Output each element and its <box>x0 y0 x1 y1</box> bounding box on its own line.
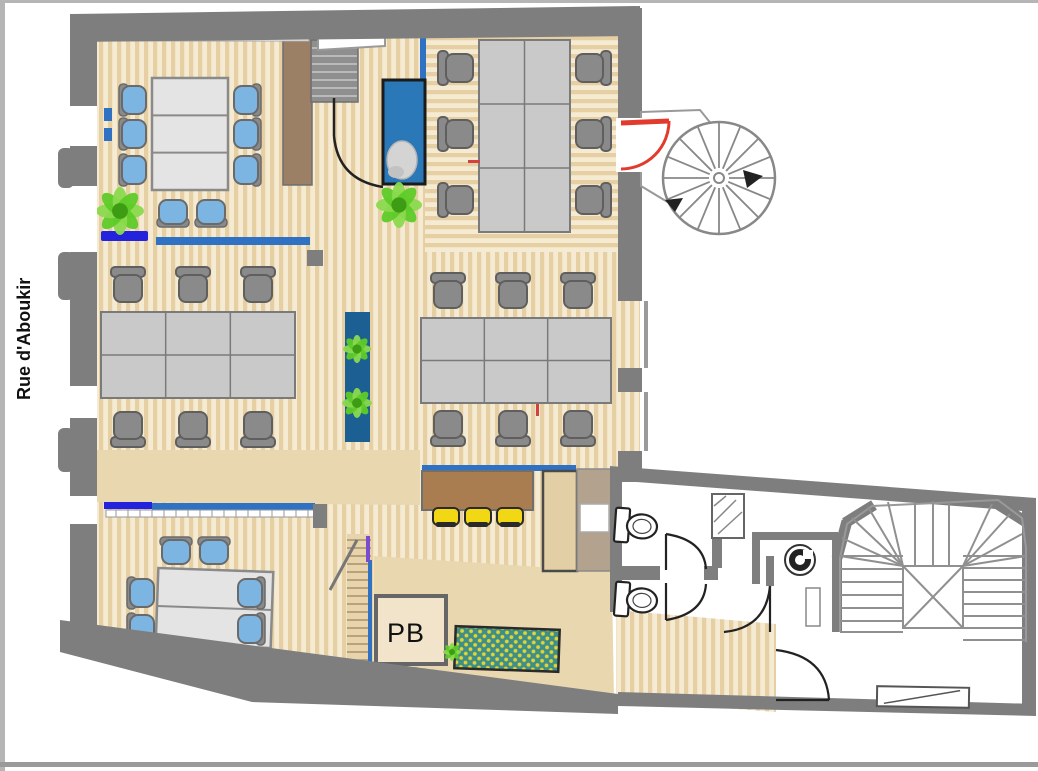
plant <box>443 643 461 661</box>
alcove-wall-h <box>752 532 838 540</box>
floor-plan-page: PB <box>0 0 1038 771</box>
aquarium <box>383 80 425 184</box>
desk-cluster <box>479 40 570 232</box>
left-wall <box>70 14 97 625</box>
hall-door-wall <box>766 556 774 586</box>
office-chair <box>438 183 473 217</box>
washbasin <box>785 545 815 575</box>
duct-shaft <box>712 494 744 538</box>
blue-chair <box>160 537 192 564</box>
office-chair <box>241 267 275 302</box>
meeting-room-glazing <box>156 237 310 245</box>
office-chair <box>111 267 145 302</box>
office-chair <box>438 51 473 85</box>
office-chair <box>176 412 210 447</box>
window-sill-mark <box>104 128 112 141</box>
plant <box>96 187 144 235</box>
right-wall-upper <box>618 8 642 120</box>
blue-chair <box>234 154 261 186</box>
blue-chair <box>119 154 146 186</box>
right-wall-mid <box>618 168 642 301</box>
office-chair <box>431 273 465 308</box>
red-tick <box>536 404 539 416</box>
wall-stub <box>307 250 323 266</box>
glass-partition <box>420 32 426 81</box>
right-wall-tie <box>618 368 642 392</box>
wardrobe-closet <box>283 37 312 185</box>
office-chair <box>561 411 595 446</box>
window-sill-mark <box>104 108 112 121</box>
office-chair <box>496 411 530 446</box>
plant <box>376 182 422 228</box>
stool <box>497 508 523 527</box>
blue-chair <box>198 537 230 564</box>
standing-table <box>543 471 577 571</box>
plant-pot-blue <box>101 231 148 241</box>
shaft-label-strip <box>806 588 820 626</box>
entry-plate <box>877 686 969 708</box>
wc-side-wall <box>712 536 722 568</box>
office-chair <box>438 117 473 151</box>
top-wall <box>72 6 640 42</box>
blue-chair <box>119 118 146 150</box>
desk-cluster <box>101 312 295 398</box>
desk-cluster <box>421 318 611 403</box>
glazing-mullions <box>106 510 325 517</box>
office-chair <box>576 183 611 217</box>
blue-chair <box>195 200 227 227</box>
planter-box <box>345 312 370 442</box>
spiral-staircase <box>641 110 775 234</box>
meeting-table <box>152 78 228 190</box>
stools <box>433 508 523 527</box>
office-chair <box>241 412 275 447</box>
plain-floor-band <box>97 450 420 505</box>
blue-chair <box>238 613 265 645</box>
office-chair <box>576 51 611 85</box>
office-chair <box>111 412 145 447</box>
office-chair <box>176 267 210 302</box>
stool <box>465 508 491 527</box>
wall-stub <box>313 504 327 528</box>
kitchen-block <box>577 469 613 571</box>
blue-chair <box>234 84 261 116</box>
blue-chair <box>119 84 146 116</box>
window-outer-line <box>644 301 648 368</box>
doormat <box>454 626 559 672</box>
wc-partition <box>612 566 660 580</box>
wall-stub <box>348 666 372 678</box>
sink-appliance <box>580 504 609 532</box>
blue-chair <box>157 200 189 227</box>
office-chair <box>576 117 611 151</box>
street-label: Rue d'Aboukir <box>14 278 34 400</box>
floor-plan-canvas: PB <box>0 0 1038 771</box>
office-chair <box>496 273 530 308</box>
pb-box: PB <box>376 596 446 664</box>
kitchen-counter <box>422 471 533 510</box>
office-chair <box>561 273 595 308</box>
office-chair <box>431 411 465 446</box>
stool <box>433 508 459 527</box>
red-tick <box>468 160 480 163</box>
glazing-vivid <box>104 502 152 509</box>
blue-chair <box>127 577 154 609</box>
blue-chair <box>238 577 265 609</box>
plant <box>342 388 372 418</box>
plant <box>343 335 371 363</box>
pb-label: PB <box>387 618 425 648</box>
blue-chair <box>234 118 261 150</box>
glazing-steel <box>152 503 315 510</box>
window-outer-line <box>644 392 648 451</box>
